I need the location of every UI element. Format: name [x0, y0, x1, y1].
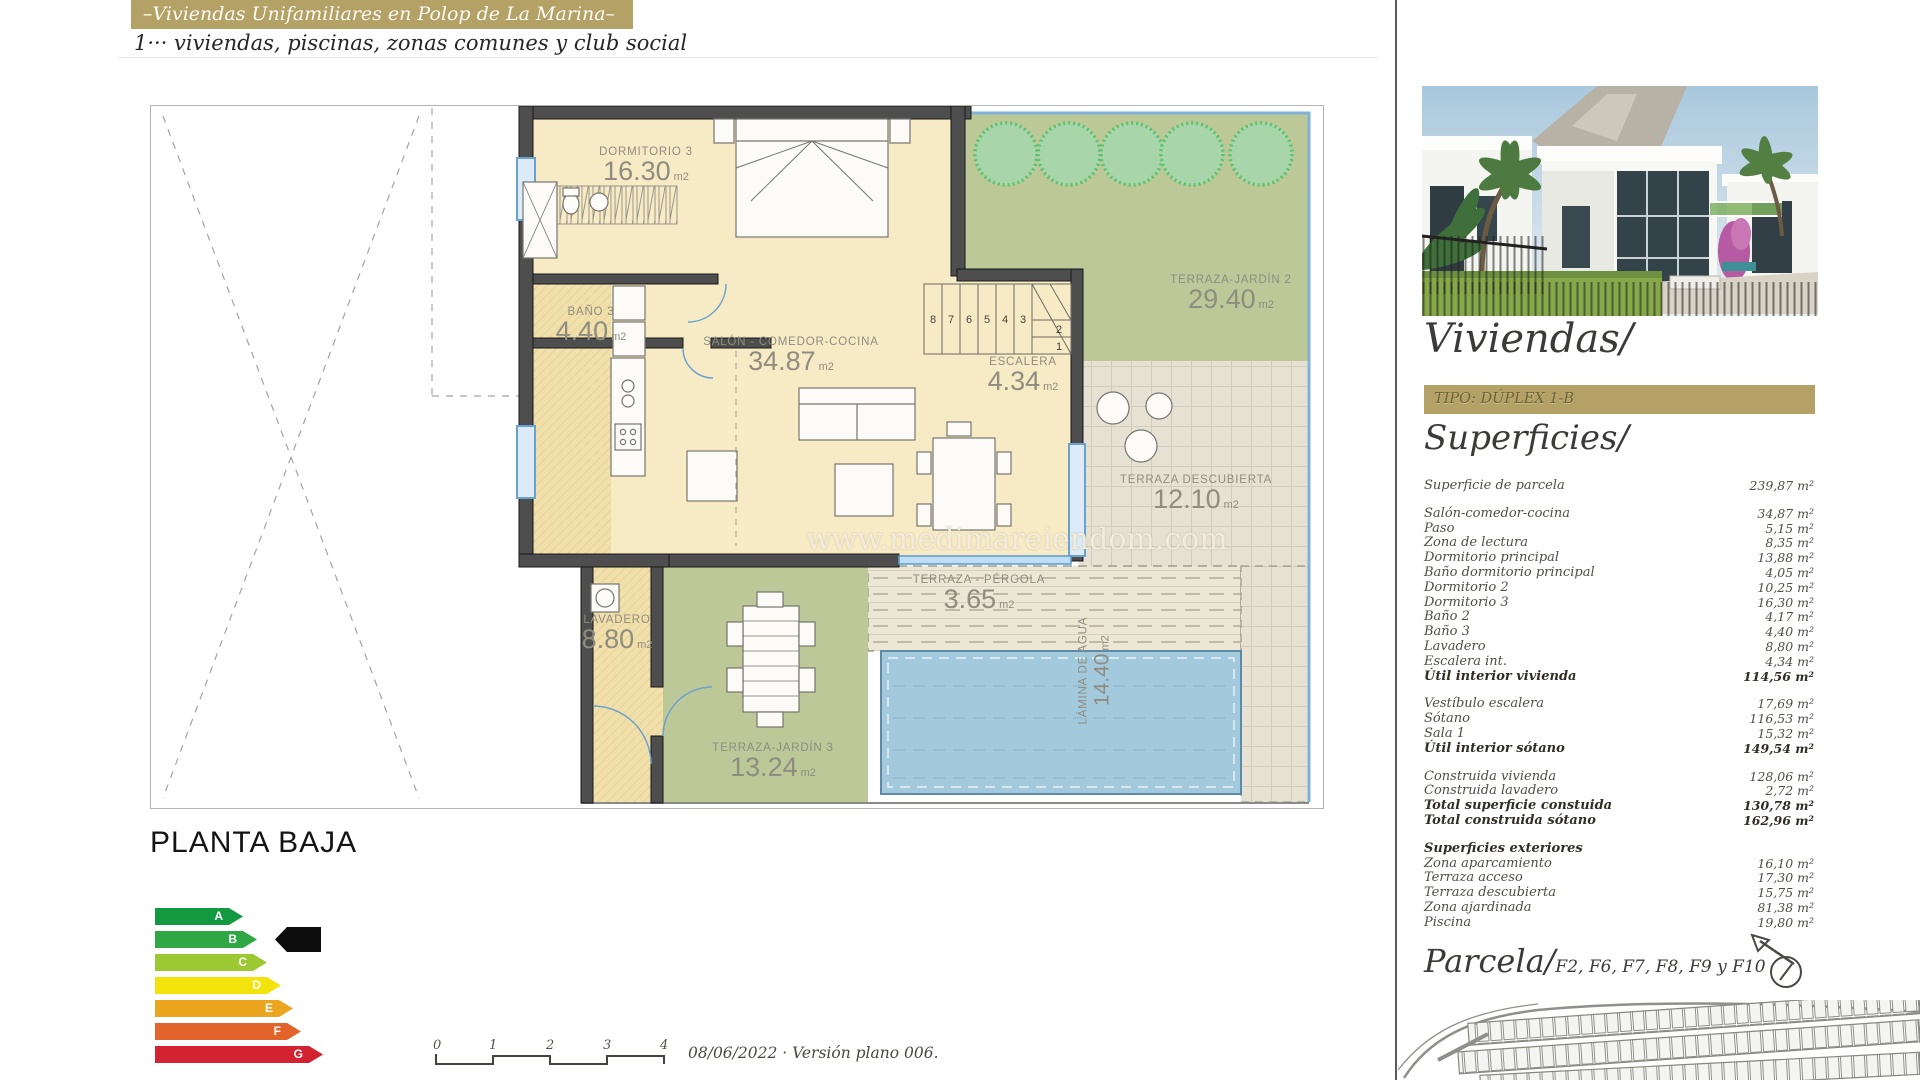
pool [881, 651, 1241, 794]
svg-text:4: 4 [1002, 314, 1008, 326]
parcela-title: Parcela/ [1424, 942, 1555, 980]
panel-divider [1395, 0, 1397, 1080]
surface-row: Baño 2 4,17 m² [1424, 609, 1814, 624]
surface-label: Vestíbulo escalera [1424, 696, 1544, 711]
surface-value: 16,10 m² [1757, 856, 1814, 871]
surface-value: 10,25 m² [1757, 580, 1814, 595]
svg-text:5: 5 [984, 314, 990, 326]
surface-label: Lavadero [1424, 639, 1486, 654]
svg-text:2: 2 [545, 1038, 554, 1053]
svg-text:1: 1 [1056, 341, 1062, 353]
surface-row: Baño dormitorio principal 4,05 m² [1424, 565, 1814, 580]
surface-row: Dormitorio principal 13,88 m² [1424, 550, 1814, 565]
energy-grade-letter: D [252, 978, 261, 992]
staircase [924, 284, 1071, 354]
surface-value: 8,35 m² [1765, 535, 1814, 550]
surface-label: Zona ajardinada [1424, 900, 1532, 915]
header-divider [118, 57, 1378, 58]
surface-label: Dormitorio 3 [1424, 595, 1509, 610]
energy-grade-letter: F [274, 1024, 281, 1038]
energy-grade-arrow: A [155, 908, 243, 925]
svg-text:3: 3 [1020, 314, 1026, 326]
surface-row [1424, 683, 1814, 696]
surface-value: 128,06 m² [1749, 769, 1814, 784]
site-map [1398, 1000, 1920, 1080]
surface-value: 4,05 m² [1765, 565, 1814, 580]
energy-grade-letter: E [265, 1001, 273, 1015]
sidebar-title: Viviendas/ [1424, 316, 1633, 362]
version-note: 08/06/2022 · Versión plano 006. [688, 1044, 939, 1062]
surface-value: 130,78 m² [1743, 798, 1814, 813]
energy-grade-row: C [155, 954, 395, 971]
scale-bar: 0 1 2 3 4 [428, 1036, 688, 1072]
svg-text:8: 8 [930, 314, 936, 326]
energy-grade-arrow: B [155, 931, 257, 948]
watermark: www.medimareiendom.com [806, 522, 1228, 557]
surfaces-title: Superficies/ [1424, 418, 1629, 458]
surface-label: Baño dormitorio principal [1424, 565, 1595, 580]
energy-grade-arrow: E [155, 1000, 293, 1017]
surface-row: Terraza acceso 17,30 m² [1424, 870, 1814, 885]
surface-label: Dormitorio 2 [1424, 580, 1509, 595]
parcela-heading: Parcela/F2, F6, F7, F8, F9 y F10 [1424, 942, 1766, 980]
surface-row: Zona aparcamiento 16,10 m² [1424, 856, 1814, 871]
surface-label: Escalera int. [1424, 654, 1507, 669]
svg-text:7: 7 [948, 314, 954, 326]
surface-label: Construida vivienda [1424, 769, 1556, 784]
surface-label: Paso [1424, 521, 1454, 536]
surface-value: 4,40 m² [1765, 624, 1814, 639]
surface-row [1424, 828, 1814, 841]
surface-label: Útil interior vivienda [1424, 669, 1576, 684]
surface-row: Construida lavadero 2,72 m² [1424, 783, 1814, 798]
surface-label: Construida lavadero [1424, 783, 1558, 798]
energy-grade-arrow: C [155, 954, 267, 971]
pergola-zone [868, 566, 1241, 651]
energy-grade-letter: B [228, 932, 237, 946]
surface-value: 19,80 m² [1757, 915, 1814, 930]
energy-grade-arrow: G [155, 1046, 323, 1063]
surface-label: Dormitorio principal [1424, 550, 1559, 565]
surface-value: 8,80 m² [1765, 639, 1814, 654]
energy-grade-row: F [155, 1023, 395, 1040]
surface-row: Dormitorio 3 16,30 m² [1424, 595, 1814, 610]
surface-label: Sala 1 [1424, 726, 1465, 741]
energy-grade-row: E [155, 1000, 395, 1017]
svg-text:3: 3 [603, 1038, 611, 1053]
surface-value: 4,34 m² [1765, 654, 1814, 669]
surface-label: Piscina [1424, 915, 1471, 930]
surfaces-list: Superficie de parcela 239,87 m² Salón-co… [1424, 478, 1814, 930]
surface-label: Superficie de parcela [1424, 478, 1565, 493]
surface-row: Construida vivienda 128,06 m² [1424, 769, 1814, 784]
surface-label: Zona de lectura [1424, 535, 1528, 550]
surface-row: Superficie de parcela 239,87 m² [1424, 478, 1814, 493]
svg-text:4: 4 [659, 1038, 668, 1053]
surface-row: Piscina 19,80 m² [1424, 915, 1814, 930]
surface-row: Superficies exteriores [1424, 841, 1814, 856]
surface-label: Terraza descubierta [1424, 885, 1556, 900]
svg-text:0: 0 [433, 1038, 441, 1053]
svg-text:1: 1 [489, 1038, 497, 1053]
surface-value: 81,38 m² [1757, 900, 1814, 915]
surface-row: Total superficie constuida 130,78 m² [1424, 798, 1814, 813]
surface-row: Sótano 116,53 m² [1424, 711, 1814, 726]
parking-zone [1241, 566, 1309, 802]
energy-grade-letter: C [238, 955, 247, 969]
energy-rating-chart: A B C D [155, 908, 395, 1069]
surface-row: Dormitorio 2 10,25 m² [1424, 580, 1814, 595]
surface-value: 162,96 m² [1743, 813, 1814, 828]
project-subtitle: 1··· viviendas, piscinas, zonas comunes … [134, 31, 687, 55]
surface-value: 15,75 m² [1757, 885, 1814, 900]
energy-grade-arrow: D [155, 977, 281, 994]
svg-text:6: 6 [966, 314, 972, 326]
plan-title: PLANTA BAJA [150, 826, 357, 860]
energy-grade-row: G [155, 1046, 395, 1063]
property-photo [1422, 86, 1818, 316]
surface-row: Vestíbulo escalera 17,69 m² [1424, 696, 1814, 711]
energy-grade-row: D [155, 977, 395, 994]
energy-grades: A B C D [155, 908, 395, 1063]
floor-plan-drawing: 8 7 6 5 4 3 2 1 [151, 106, 1323, 808]
surface-row: Terraza descubierta 15,75 m² [1424, 885, 1814, 900]
surface-row: Paso 5,15 m² [1424, 521, 1814, 536]
surface-label: Superficies exteriores [1424, 841, 1583, 856]
surface-row: Total construida sótano 162,96 m² [1424, 813, 1814, 828]
energy-grade-arrow: F [155, 1023, 301, 1040]
surface-row: Salón-comedor-cocina 34,87 m² [1424, 506, 1814, 521]
surface-row: Zona ajardinada 81,38 m² [1424, 900, 1814, 915]
surface-row: Escalera int. 4,34 m² [1424, 654, 1814, 669]
surface-label: Terraza acceso [1424, 870, 1523, 885]
surface-row: Útil interior sótano 149,54 m² [1424, 741, 1814, 756]
surface-label: Salón-comedor-cocina [1424, 506, 1570, 521]
surface-value: 4,17 m² [1765, 609, 1814, 624]
surface-value: 2,72 m² [1765, 783, 1814, 798]
surface-value: 239,87 m² [1749, 478, 1814, 493]
surface-value: 17,30 m² [1757, 870, 1814, 885]
floor-plan: 8 7 6 5 4 3 2 1 DORMITORIO 3 16.30m2 BAÑ… [150, 105, 1324, 809]
energy-grade-row: A [155, 908, 395, 925]
surface-label: Baño 3 [1424, 624, 1470, 639]
surface-label: Total construida sótano [1424, 813, 1596, 828]
unbuilt-zone-dashes [163, 108, 519, 798]
surface-row: Útil interior vivienda 114,56 m² [1424, 669, 1814, 684]
surface-value: 15,32 m² [1757, 726, 1814, 741]
surface-label: Baño 2 [1424, 609, 1470, 624]
surface-value: 17,69 m² [1757, 696, 1814, 711]
surface-row [1424, 493, 1814, 506]
surface-label: Sótano [1424, 711, 1470, 726]
energy-grade-letter: G [294, 1047, 303, 1061]
surface-label: Total superficie constuida [1424, 798, 1612, 813]
north-compass-icon [1742, 932, 1806, 990]
surface-label: Zona aparcamiento [1424, 856, 1552, 871]
surface-value: 114,56 m² [1743, 669, 1814, 684]
surface-row [1424, 756, 1814, 769]
surface-value: 13,88 m² [1757, 550, 1814, 565]
surface-row: Zona de lectura 8,35 m² [1424, 535, 1814, 550]
energy-grade-letter: A [214, 909, 223, 923]
svg-text:2: 2 [1056, 324, 1062, 336]
surface-value: 34,87 m² [1757, 506, 1814, 521]
parcela-subtitle: F2, F6, F7, F8, F9 y F10 [1555, 957, 1765, 977]
surface-value: 149,54 m² [1743, 741, 1814, 756]
surface-row: Sala 1 15,32 m² [1424, 726, 1814, 741]
project-banner: –Viviendas Unifamiliares en Polop de La … [131, 0, 633, 29]
surface-row: Baño 3 4,40 m² [1424, 624, 1814, 639]
surface-value: 5,15 m² [1765, 521, 1814, 536]
surface-label: Útil interior sótano [1424, 741, 1565, 756]
surface-value: 16,30 m² [1757, 595, 1814, 610]
type-banner: TIPO: DÚPLEX 1-B [1424, 385, 1815, 414]
garden-bushes [975, 123, 1292, 185]
surface-row: Lavadero 8,80 m² [1424, 639, 1814, 654]
surface-value: 116,53 m² [1749, 711, 1814, 726]
plan-sheet-page: –Viviendas Unifamiliares en Polop de La … [0, 0, 1920, 1080]
